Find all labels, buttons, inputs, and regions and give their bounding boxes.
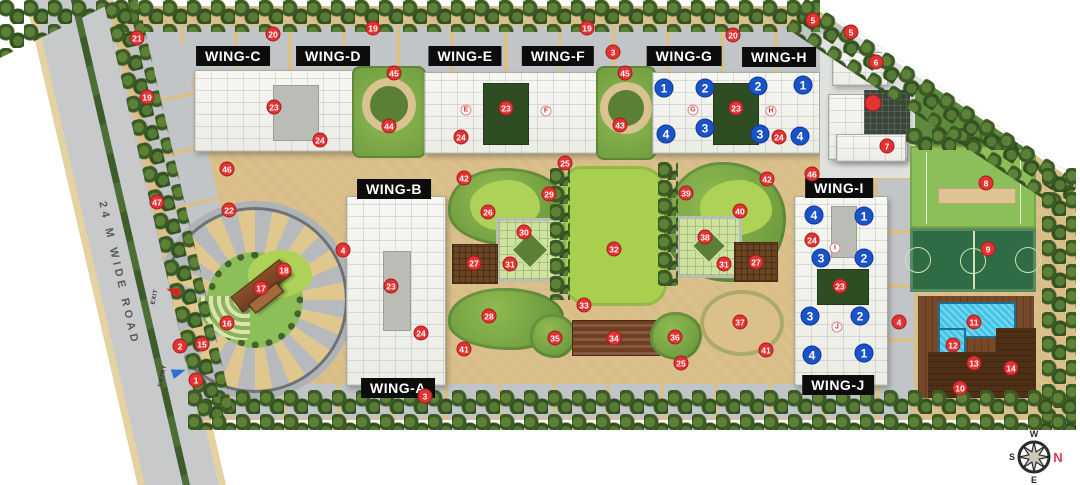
wing-label-wing-g: WING-G <box>647 46 722 66</box>
amenity-marker-23: 23 <box>499 101 514 116</box>
amenity-marker-20: 20 <box>726 28 741 43</box>
amenity-marker-29: 29 <box>542 187 557 202</box>
amenity-marker-23: 23 <box>267 100 282 115</box>
unit-marker-4: 4 <box>805 206 824 225</box>
amenity-marker-28: 28 <box>482 309 497 324</box>
unit-marker-2: 2 <box>855 249 874 268</box>
amenity-marker-3: 3 <box>418 389 433 404</box>
unit-marker-1: 1 <box>655 79 674 98</box>
amenity-marker-40: 40 <box>733 204 748 219</box>
amenity-marker-1: 1 <box>189 373 204 388</box>
amenity-marker-33: 33 <box>577 298 592 313</box>
amenity-marker-2: 2 <box>173 339 188 354</box>
amenity-marker-9: 9 <box>981 242 996 257</box>
amenity-marker-24: 24 <box>805 233 820 248</box>
amenity-marker-5: 5 <box>806 13 821 28</box>
amenity-marker-42: 42 <box>760 172 775 187</box>
unit-marker-1: 1 <box>855 207 874 226</box>
amenity-marker-4: 4 <box>336 243 351 258</box>
unit-marker-3: 3 <box>751 125 770 144</box>
wing-label-wing-f: WING-F <box>522 46 594 66</box>
unit-marker-1: 1 <box>794 76 813 95</box>
amenity-marker-23: 23 <box>384 279 399 294</box>
building-letter-j: J <box>832 322 843 333</box>
amenity-marker-22: 22 <box>222 203 237 218</box>
amenity-marker-3: 3 <box>606 45 621 60</box>
amenity-marker-25: 25 <box>674 356 689 371</box>
unit-marker-2: 2 <box>696 79 715 98</box>
amenity-marker-38: 38 <box>698 230 713 245</box>
amenity-marker-12: 12 <box>946 338 961 353</box>
red-dot-marker <box>865 95 882 112</box>
amenity-marker-19: 19 <box>366 21 381 36</box>
wing-label-wing-j: WING-J <box>802 375 874 395</box>
wing-label-wing-i: WING-I <box>805 178 873 198</box>
amenity-marker-31: 31 <box>717 257 732 272</box>
unit-marker-1: 1 <box>855 344 874 363</box>
amenity-marker-37: 37 <box>733 315 748 330</box>
amenity-marker-31: 31 <box>503 257 518 272</box>
building-letter-i: I <box>830 243 841 254</box>
wing-label-wing-c: WING-C <box>196 46 270 66</box>
amenity-marker-34: 34 <box>607 331 622 346</box>
amenity-marker-7: 7 <box>880 139 895 154</box>
unit-marker-2: 2 <box>851 307 870 326</box>
building-letter-e: E <box>461 105 472 116</box>
amenity-marker-47: 47 <box>150 195 165 210</box>
wing-label-wing-d: WING-D <box>296 46 370 66</box>
amenity-marker-35: 35 <box>548 331 563 346</box>
unit-marker-3: 3 <box>812 249 831 268</box>
amenity-marker-45: 45 <box>618 66 633 81</box>
wing-label-wing-b: WING-B <box>357 179 431 199</box>
amenity-marker-13: 13 <box>967 356 982 371</box>
amenity-marker-39: 39 <box>679 186 694 201</box>
unit-marker-4: 4 <box>657 125 676 144</box>
amenity-marker-8: 8 <box>979 176 994 191</box>
amenity-marker-23: 23 <box>729 101 744 116</box>
unit-marker-4: 4 <box>803 346 822 365</box>
amenity-marker-11: 11 <box>967 315 982 330</box>
amenity-marker-27: 27 <box>467 256 482 271</box>
amenity-marker-24: 24 <box>772 130 787 145</box>
amenity-marker-19: 19 <box>580 21 595 36</box>
amenity-marker-20: 20 <box>266 27 281 42</box>
amenity-marker-43: 43 <box>613 118 628 133</box>
building-letter-g: G <box>688 105 699 116</box>
markers-overlay: WING-CWING-DWING-EWING-FWING-GWING-HWING… <box>0 0 1080 485</box>
amenity-marker-19: 19 <box>140 90 155 105</box>
unit-marker-4: 4 <box>791 127 810 146</box>
amenity-marker-6: 6 <box>869 55 884 70</box>
amenity-marker-36: 36 <box>668 330 683 345</box>
master-plan: 24 M WIDE ROAD <box>0 0 1080 485</box>
unit-marker-3: 3 <box>801 307 820 326</box>
amenity-marker-23: 23 <box>833 279 848 294</box>
amenity-marker-46: 46 <box>805 167 820 182</box>
unit-marker-3: 3 <box>696 119 715 138</box>
amenity-marker-5: 5 <box>844 25 859 40</box>
amenity-marker-44: 44 <box>382 119 397 134</box>
amenity-marker-27: 27 <box>749 255 764 270</box>
amenity-marker-16: 16 <box>220 316 235 331</box>
amenity-marker-30: 30 <box>517 225 532 240</box>
amenity-marker-21: 21 <box>130 31 145 46</box>
wing-label-wing-e: WING-E <box>428 46 501 66</box>
wing-label-wing-h: WING-H <box>742 47 816 67</box>
amenity-marker-46: 46 <box>220 162 235 177</box>
unit-marker-2: 2 <box>749 77 768 96</box>
amenity-marker-14: 14 <box>1004 361 1019 376</box>
amenity-marker-42: 42 <box>457 171 472 186</box>
amenity-marker-15: 15 <box>195 337 210 352</box>
amenity-marker-18: 18 <box>277 263 292 278</box>
amenity-marker-10: 10 <box>953 381 968 396</box>
amenity-marker-24: 24 <box>454 130 469 145</box>
amenity-marker-32: 32 <box>607 242 622 257</box>
amenity-marker-24: 24 <box>313 133 328 148</box>
amenity-marker-4: 4 <box>892 315 907 330</box>
building-letter-f: F <box>541 106 552 117</box>
amenity-marker-25: 25 <box>558 156 573 171</box>
amenity-marker-45: 45 <box>387 66 402 81</box>
amenity-marker-17: 17 <box>254 281 269 296</box>
building-letter-h: H <box>766 106 777 117</box>
amenity-marker-41: 41 <box>457 342 472 357</box>
amenity-marker-26: 26 <box>481 205 496 220</box>
amenity-marker-41: 41 <box>759 343 774 358</box>
amenity-marker-24: 24 <box>414 326 429 341</box>
